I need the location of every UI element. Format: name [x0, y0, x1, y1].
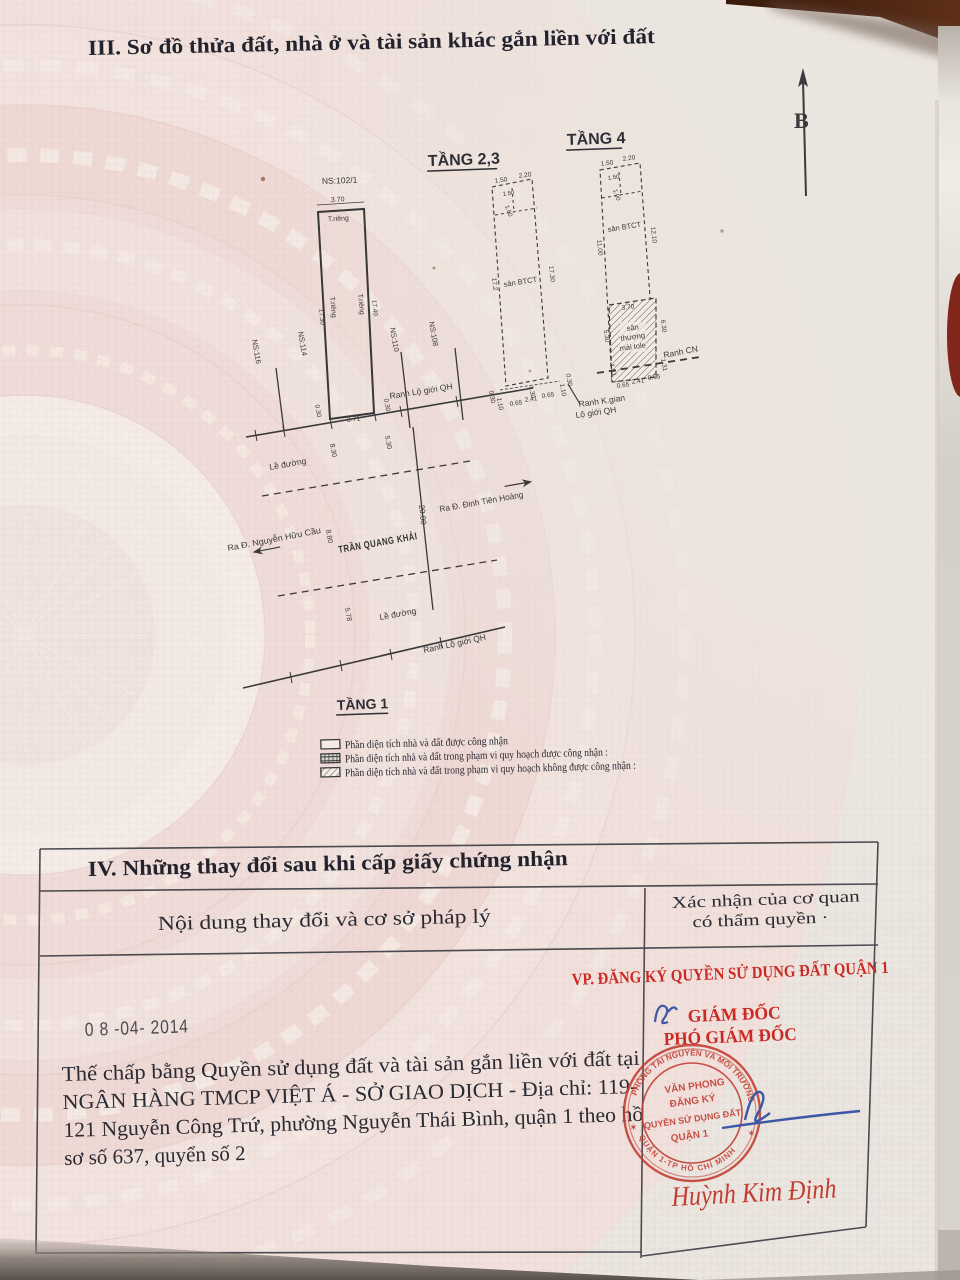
svg-text:5.30: 5.30: [602, 329, 610, 343]
svg-text:GIÁM ĐỐC: GIÁM ĐỐC: [687, 1001, 781, 1026]
svg-text:3.70: 3.70: [331, 196, 345, 204]
svg-text:0 8 -04- 2014: 0 8 -04- 2014: [84, 1016, 189, 1041]
svg-text:✶: ✶: [748, 1129, 755, 1138]
svg-text:6.30: 6.30: [659, 319, 667, 333]
svg-text:T.riêng: T.riêng: [328, 215, 349, 223]
svg-text:TẦNG 4: TẦNG 4: [566, 128, 625, 149]
svg-text:TẦNG 1: TẦNG 1: [337, 695, 389, 713]
svg-text:B: B: [794, 108, 809, 133]
svg-text:17.2: 17.2: [490, 277, 498, 291]
svg-text:NS:102/1: NS:102/1: [322, 175, 358, 186]
svg-text:✶: ✶: [630, 1123, 637, 1132]
svg-text:sơ số 637, quyển số 2: sơ số 637, quyển số 2: [64, 1141, 246, 1170]
svg-text:TẦNG 2,3: TẦNG 2,3: [427, 149, 500, 171]
